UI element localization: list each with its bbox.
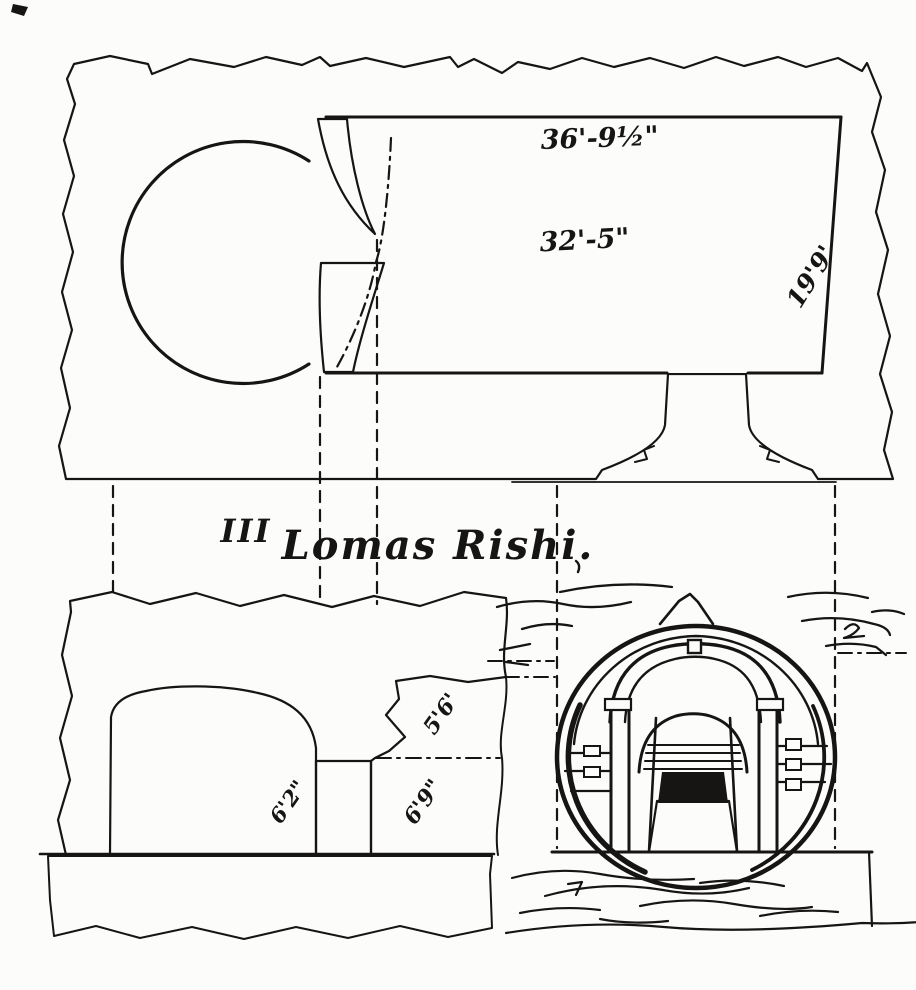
plan-hall-length-label: 32'-5": [539, 223, 630, 259]
figure-title: Lomas Rishi.: [281, 522, 595, 569]
figure-number: III: [220, 512, 272, 550]
section-floor-band: [48, 856, 492, 939]
section-porch-upper-label: 5'6': [418, 688, 465, 739]
lomas-rishi-drawing: 36'-9½" 32'-5" 19'9' 6'2" 5'6' 6'9" III …: [0, 0, 916, 990]
section-right-broken-edge: [497, 677, 507, 855]
facade-door-opening-dark: [658, 772, 728, 803]
plan-overall-length-label: 36'-9½": [540, 121, 659, 156]
ink-speck: [11, 4, 28, 16]
facade-post-left-capital: [605, 699, 631, 710]
facade-right-ledges: [778, 739, 831, 790]
facade-finial: [688, 640, 701, 653]
section-cell-height-label: 6'2": [264, 775, 311, 828]
facade-ground-right-edge: [869, 852, 872, 926]
plan-view: [59, 56, 893, 479]
facade-rock-peak: [660, 594, 713, 624]
section-view: [40, 592, 507, 939]
section-porch-lower-label: 6'9": [399, 775, 448, 830]
facade-post-right-capital: [757, 699, 783, 710]
engraving-sheet: 36'-9½" 32'-5" 19'9' 6'2" 5'6' 6'9" III …: [0, 0, 916, 990]
facade-view: [497, 584, 916, 933]
